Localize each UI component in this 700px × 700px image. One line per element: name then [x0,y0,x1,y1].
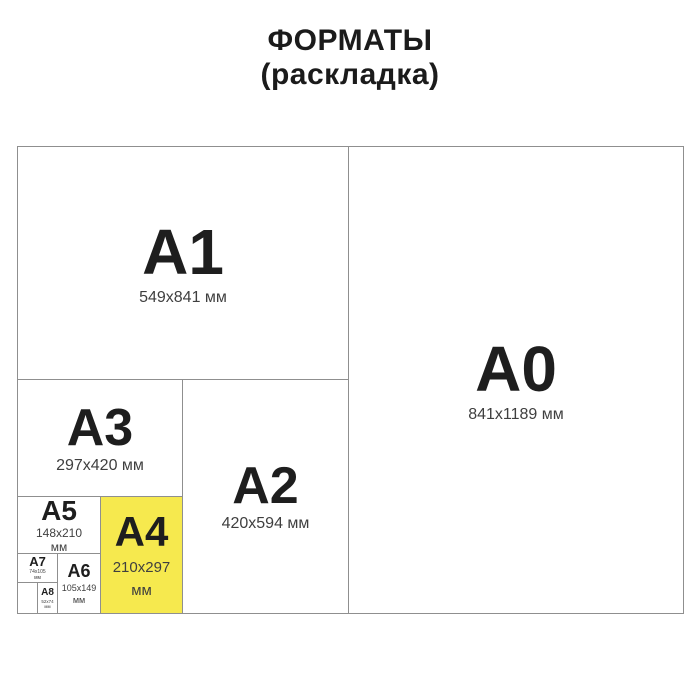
format-a1-label: A1 [142,220,224,284]
page-title-line-2: (раскладка) [0,58,700,92]
format-a2-size: 420x594 мм [222,515,310,533]
format-a8-label: A8 [41,588,54,598]
format-a5-size-line2: мм [51,540,68,554]
formats-layout-diagram: A1 549x841 мм A0 841x1189 мм A3 297x420 … [17,146,684,614]
format-a5-label: A5 [41,497,77,525]
format-a0: A0 841x1189 мм [349,147,683,613]
format-a3-size: 297x420 мм [56,457,144,475]
format-a3: A3 297x420 мм [18,380,183,497]
format-a7: A7 74x105 мм [18,554,58,583]
format-a8-size-line2: мм [44,604,50,609]
format-a0-label: A0 [475,337,557,401]
page-title-line-1: ФОРМАТЫ [0,24,700,58]
format-a8: A8 52x74 мм [38,583,58,613]
format-a5-size-line1: 148x210 [36,526,82,540]
format-a6-size-line1: 105x149 [62,582,97,594]
paper-formats-page: ФОРМАТЫ (раскладка) A1 549x841 мм A0 841… [0,0,700,700]
format-a4-label: A4 [115,511,169,553]
page-title: ФОРМАТЫ (раскладка) [0,24,700,92]
format-a3-label: A3 [67,402,133,454]
format-a2: A2 420x594 мм [183,380,349,613]
format-a5: A5 148x210 мм [18,497,101,554]
format-a7-label: A7 [29,555,46,568]
format-a6: A6 105x149 мм [58,554,101,613]
format-a2-label: A2 [232,460,298,512]
format-a1-size: 549x841 мм [139,289,227,307]
format-a6-label: A6 [67,562,90,580]
format-a4-highlighted: A4 210x297 мм [101,497,183,613]
empty-format-slot [18,583,38,613]
format-a1: A1 549x841 мм [18,147,349,380]
format-a0-size: 841x1189 мм [468,406,564,424]
format-a4-size-line2: мм [131,582,152,599]
format-a6-size-line2: мм [73,594,85,606]
format-a4-size-line1: 210x297 [113,559,171,576]
format-a7-size-line2: мм [34,575,41,581]
